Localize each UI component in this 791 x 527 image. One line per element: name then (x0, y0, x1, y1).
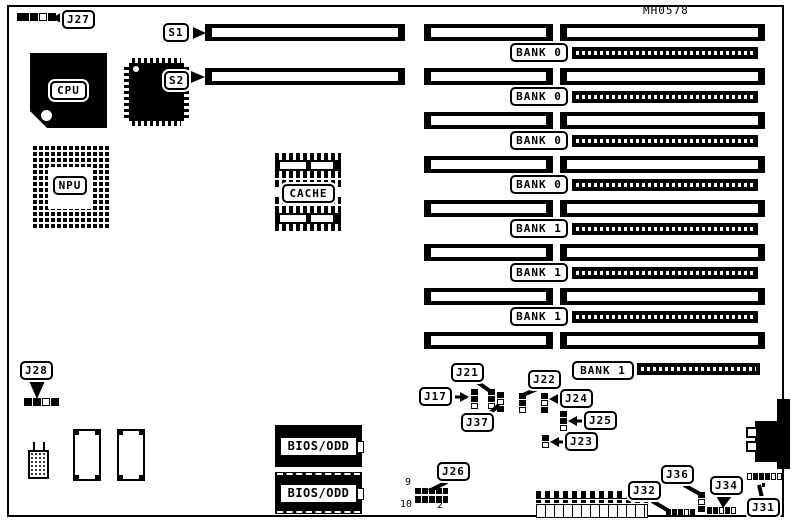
bank-label: BANK 0 (510, 87, 568, 106)
bank-label: BANK 0 (510, 131, 568, 150)
bank-label: BANK 1 (572, 361, 634, 380)
cpu-label: CPU (50, 81, 87, 100)
slot-s2-label: S2 (164, 71, 189, 90)
j31-label: J31 (747, 498, 780, 517)
j26-label: J26 (437, 462, 470, 481)
j26-pin10-label: 10 (400, 499, 412, 510)
j24-label: J24 (560, 389, 593, 408)
bank-label: BANK 0 (510, 175, 568, 194)
bank-label: BANK 1 (510, 263, 568, 282)
j27-label: J27 (62, 10, 95, 29)
j26-pin9-label: 9 (405, 477, 411, 488)
j26-pin2-label: 2 (437, 500, 443, 511)
npu-label: NPU (53, 176, 87, 195)
bank-label: BANK 0 (510, 43, 568, 62)
slot-s1-label: S1 (163, 23, 189, 42)
j17-label: J17 (419, 387, 452, 406)
j37-label: J37 (461, 413, 494, 432)
motherboard-diagram: MH0578 BANK 0 BANK 0 BANK 0 BANK 0 BANK … (0, 0, 791, 527)
j28-label: J28 (20, 361, 53, 380)
j36-label: J36 (661, 465, 694, 484)
bank-label: BANK 1 (510, 219, 568, 238)
j32-label: J32 (628, 481, 661, 500)
cache-label: CACHE (282, 184, 335, 203)
j22-label: J22 (528, 370, 561, 389)
j23-label: J23 (565, 432, 598, 451)
j34-label: J34 (710, 476, 743, 495)
bank-label: BANK 1 (510, 307, 568, 326)
j25-label: J25 (584, 411, 617, 430)
callout-pointers (0, 0, 791, 527)
j21-label: J21 (451, 363, 484, 382)
